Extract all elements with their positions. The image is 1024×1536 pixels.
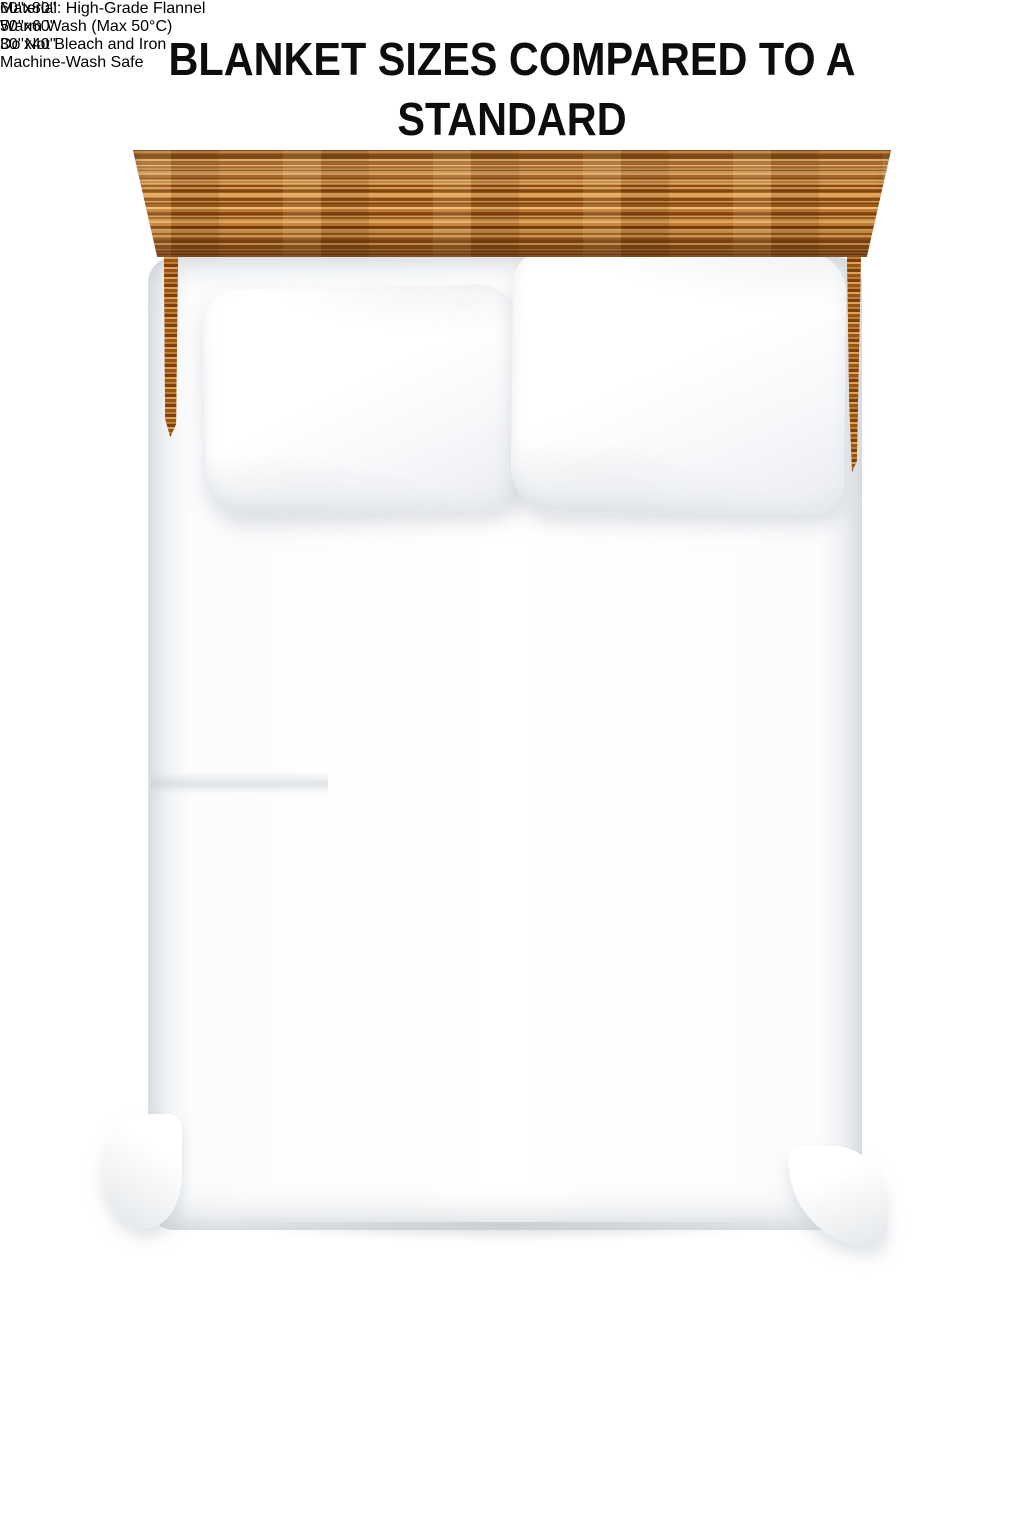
sheet-fold-line <box>150 772 328 794</box>
pillow-left <box>202 284 523 517</box>
blanket-30x40 <box>179 793 327 1192</box>
size-label-60x80: 60''x80'' <box>0 0 1024 18</box>
size-label-50x60: 50''x60'' <box>0 18 1024 36</box>
bed-size-diagram: 60''x80'' 50''x60'' 30''x40'' <box>0 0 1024 1536</box>
bed-headboard <box>133 150 891 257</box>
bed-post-left <box>164 253 178 437</box>
bed-sheet-corner-left <box>102 1114 182 1228</box>
infographic-page: BLANKET SIZES COMPARED TO A STANDARD QUE… <box>0 0 1024 1536</box>
pillow-right <box>511 249 847 514</box>
bed-bottom-shadow <box>150 1222 862 1246</box>
size-label-30x40: 30''x40'' <box>0 36 1024 54</box>
